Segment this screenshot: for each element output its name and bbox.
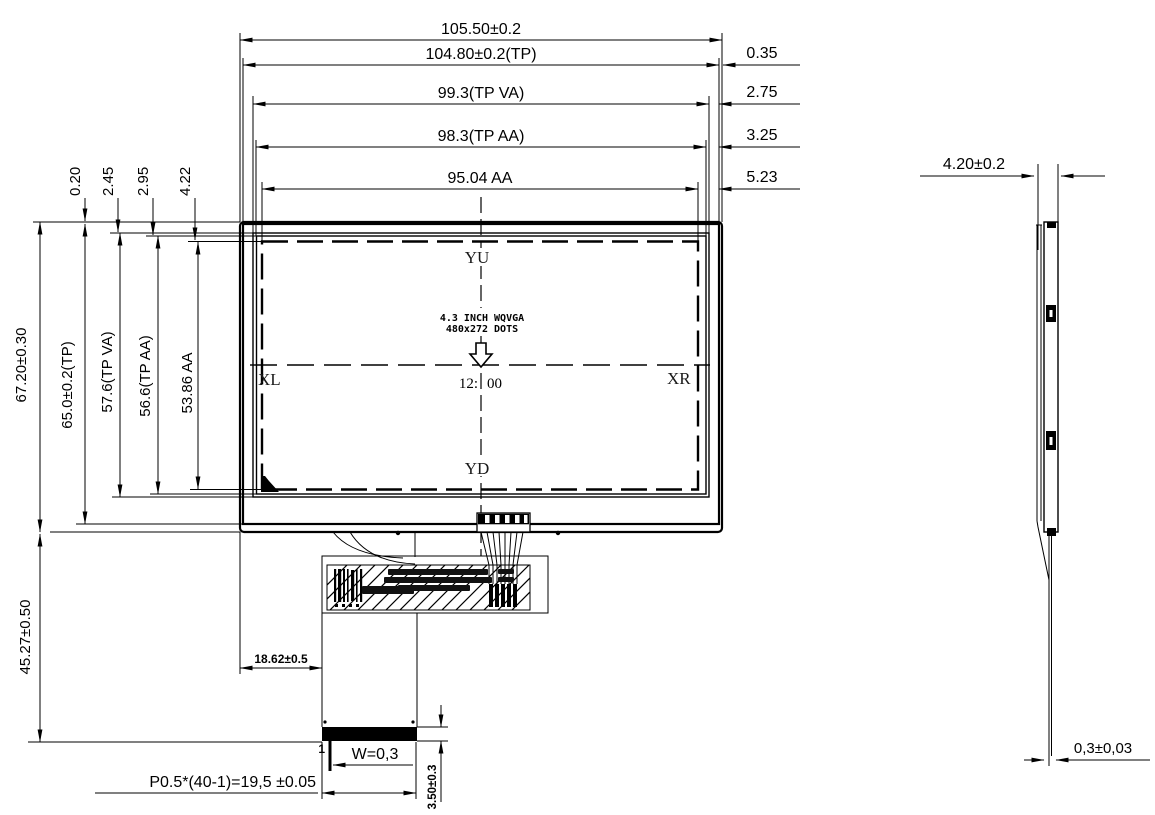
offset-tp-top: 0.20 xyxy=(67,167,84,196)
offset-tp-right: 0.35 xyxy=(746,45,777,62)
top-left-offset-leaders: 0.20 2.45 2.95 4.22 xyxy=(67,167,195,240)
fpc-end-connector xyxy=(322,727,417,741)
touch-marker-down: YD xyxy=(465,459,490,478)
top-dimensions: 105.50±0.2 104.80±0.2(TP) 99.3(TP VA) 98… xyxy=(240,21,722,189)
dim-aa-width: 95.04 AA xyxy=(448,170,513,187)
fpc-body xyxy=(300,556,559,613)
touch-marker-right: XR xyxy=(667,369,691,388)
front-view: 105.50±0.2 104.80±0.2(TP) 99.3(TP VA) 98… xyxy=(13,21,800,809)
viewing-direction-arrow-icon xyxy=(470,343,492,367)
panel-spec-line2: 480x272 DOTS xyxy=(446,324,518,335)
dim-fpc-thickness: 0,3±0,03 xyxy=(1074,740,1132,757)
panel-spec-line1: 4.3 INCH WQVGA xyxy=(440,313,524,324)
right-offset-leaders: 0.35 2.75 3.25 5.23 xyxy=(719,45,800,189)
dim-overall-width: 105.50±0.2 xyxy=(441,21,521,38)
dim-tp-aa-width: 98.3(TP AA) xyxy=(438,128,525,145)
fpc-connector-tab xyxy=(477,513,530,532)
dim-tp-height: 65.0±0.2(TP) xyxy=(59,341,76,428)
center-markers: YU XL XR YD 4.3 INCH WQVGA 480x272 DOTS … xyxy=(258,248,691,478)
side-profile xyxy=(1036,222,1058,766)
side-top-clip xyxy=(1047,223,1056,229)
left-dimensions: 67.20±0.30 65.0±0.2(TP) 57.6(TP VA) 56.6… xyxy=(13,222,198,742)
drawing-sheet: 105.50±0.2 104.80±0.2(TP) 99.3(TP VA) 98… xyxy=(0,0,1155,815)
clock-direction-left: 12: xyxy=(459,376,478,392)
side-thickness-dimension: 4.20±0.2 xyxy=(920,156,1105,250)
dim-tp-va-width: 99.3(TP VA) xyxy=(438,85,525,102)
clock-direction-right: 00 xyxy=(487,376,502,392)
dim-aa-height: 53.86 AA xyxy=(179,353,196,414)
side-bottom-clip xyxy=(1047,528,1056,536)
aa-corner-mark xyxy=(261,476,279,492)
dim-tp-width: 104.80±0.2(TP) xyxy=(425,46,536,63)
fpc-barcode xyxy=(334,569,362,607)
offset-tpaa-right: 3.25 xyxy=(746,127,777,144)
dim-pin-pitch: P0.5*(40-1)=19,5 ±0.05 xyxy=(149,774,316,791)
dim-module-thickness: 4.20±0.2 xyxy=(943,156,1005,173)
dim-fpc-height: 45.27±0.50 xyxy=(17,600,34,675)
dim-module-height: 67.20±0.30 xyxy=(13,328,30,403)
offset-tpaa-top: 2.95 xyxy=(135,167,152,196)
dim-pin-width: W=0,3 xyxy=(352,746,399,763)
side-view: 4.20±0.2 0,3±0,03 xyxy=(920,156,1150,766)
touch-marker-up: YU xyxy=(465,248,490,267)
offset-va-right: 2.75 xyxy=(746,84,777,101)
side-clips xyxy=(1046,305,1056,450)
offset-aa-top: 4.22 xyxy=(177,167,194,196)
dim-fpc-offset: 18.62±0.5 xyxy=(254,652,308,666)
offset-va-top: 2.45 xyxy=(100,167,117,196)
outline-drawing-canvas: 105.50±0.2 104.80±0.2(TP) 99.3(TP VA) 98… xyxy=(0,0,1155,815)
offset-aa-right: 5.23 xyxy=(746,169,777,186)
side-fpc-thickness-dimension: 0,3±0,03 xyxy=(1024,740,1150,760)
touch-marker-left: XL xyxy=(258,370,281,389)
dim-tp-va-height: 57.6(TP VA) xyxy=(99,331,116,412)
dim-tp-aa-height: 56.6(TP AA) xyxy=(137,335,154,416)
dim-connector-height: 3.50±0.3 xyxy=(427,765,439,810)
